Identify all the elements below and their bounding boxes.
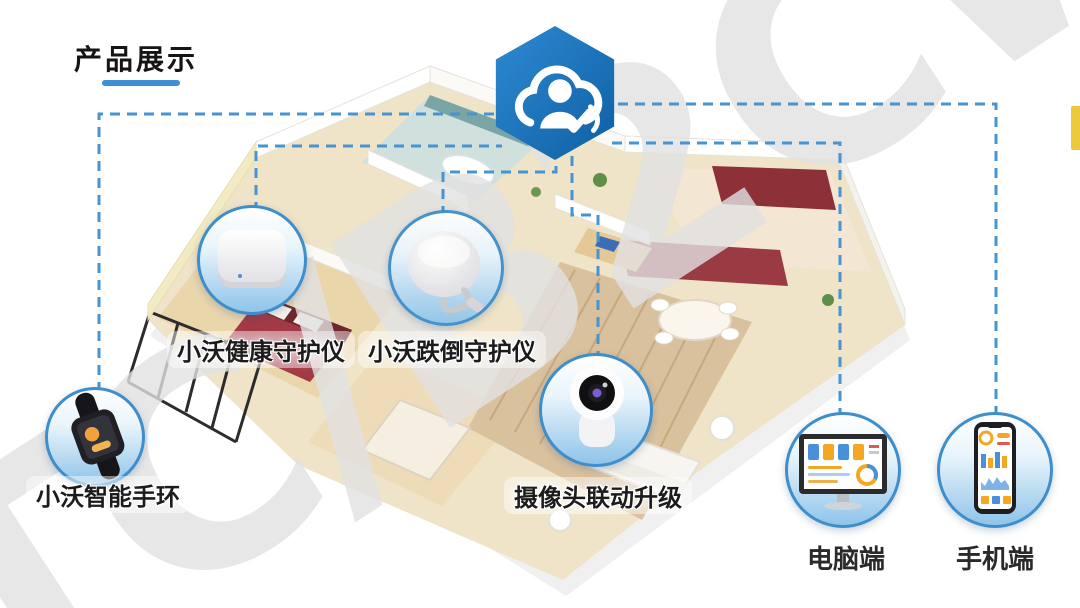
device-circle-phone (937, 412, 1053, 528)
label-health-guardian: 小沃健康守护仪 (167, 331, 355, 368)
label-fall-guardian: 小沃跌倒守护仪 (358, 331, 546, 368)
label-camera: 摄像头联动升级 (504, 477, 692, 514)
label-phone-endpoint: 手机端 (946, 538, 1044, 577)
fall-sensor-icon (392, 214, 500, 322)
smartwatch-icon (48, 390, 142, 484)
health-monitor-icon (200, 208, 304, 312)
device-circle-health-guardian (197, 205, 307, 315)
device-circle-smart-band (45, 387, 145, 487)
yellow-edge-tab (1071, 106, 1080, 150)
cloud-platform (488, 24, 622, 162)
label-smart-band: 小沃智能手环 (26, 476, 190, 513)
smartphone-icon (941, 416, 1049, 524)
slide: TC/B2CW (0, 0, 1080, 608)
desktop-monitor-icon (789, 416, 897, 524)
security-camera-icon (543, 357, 649, 463)
device-circle-camera (539, 353, 653, 467)
device-circle-fall-guardian (388, 210, 504, 326)
device-circle-pc (785, 412, 901, 528)
label-pc-endpoint: 电脑端 (797, 538, 895, 577)
title-underline (102, 80, 180, 86)
cloud-user-verified-icon (488, 24, 622, 162)
page-title: 产品展示 (74, 38, 198, 78)
